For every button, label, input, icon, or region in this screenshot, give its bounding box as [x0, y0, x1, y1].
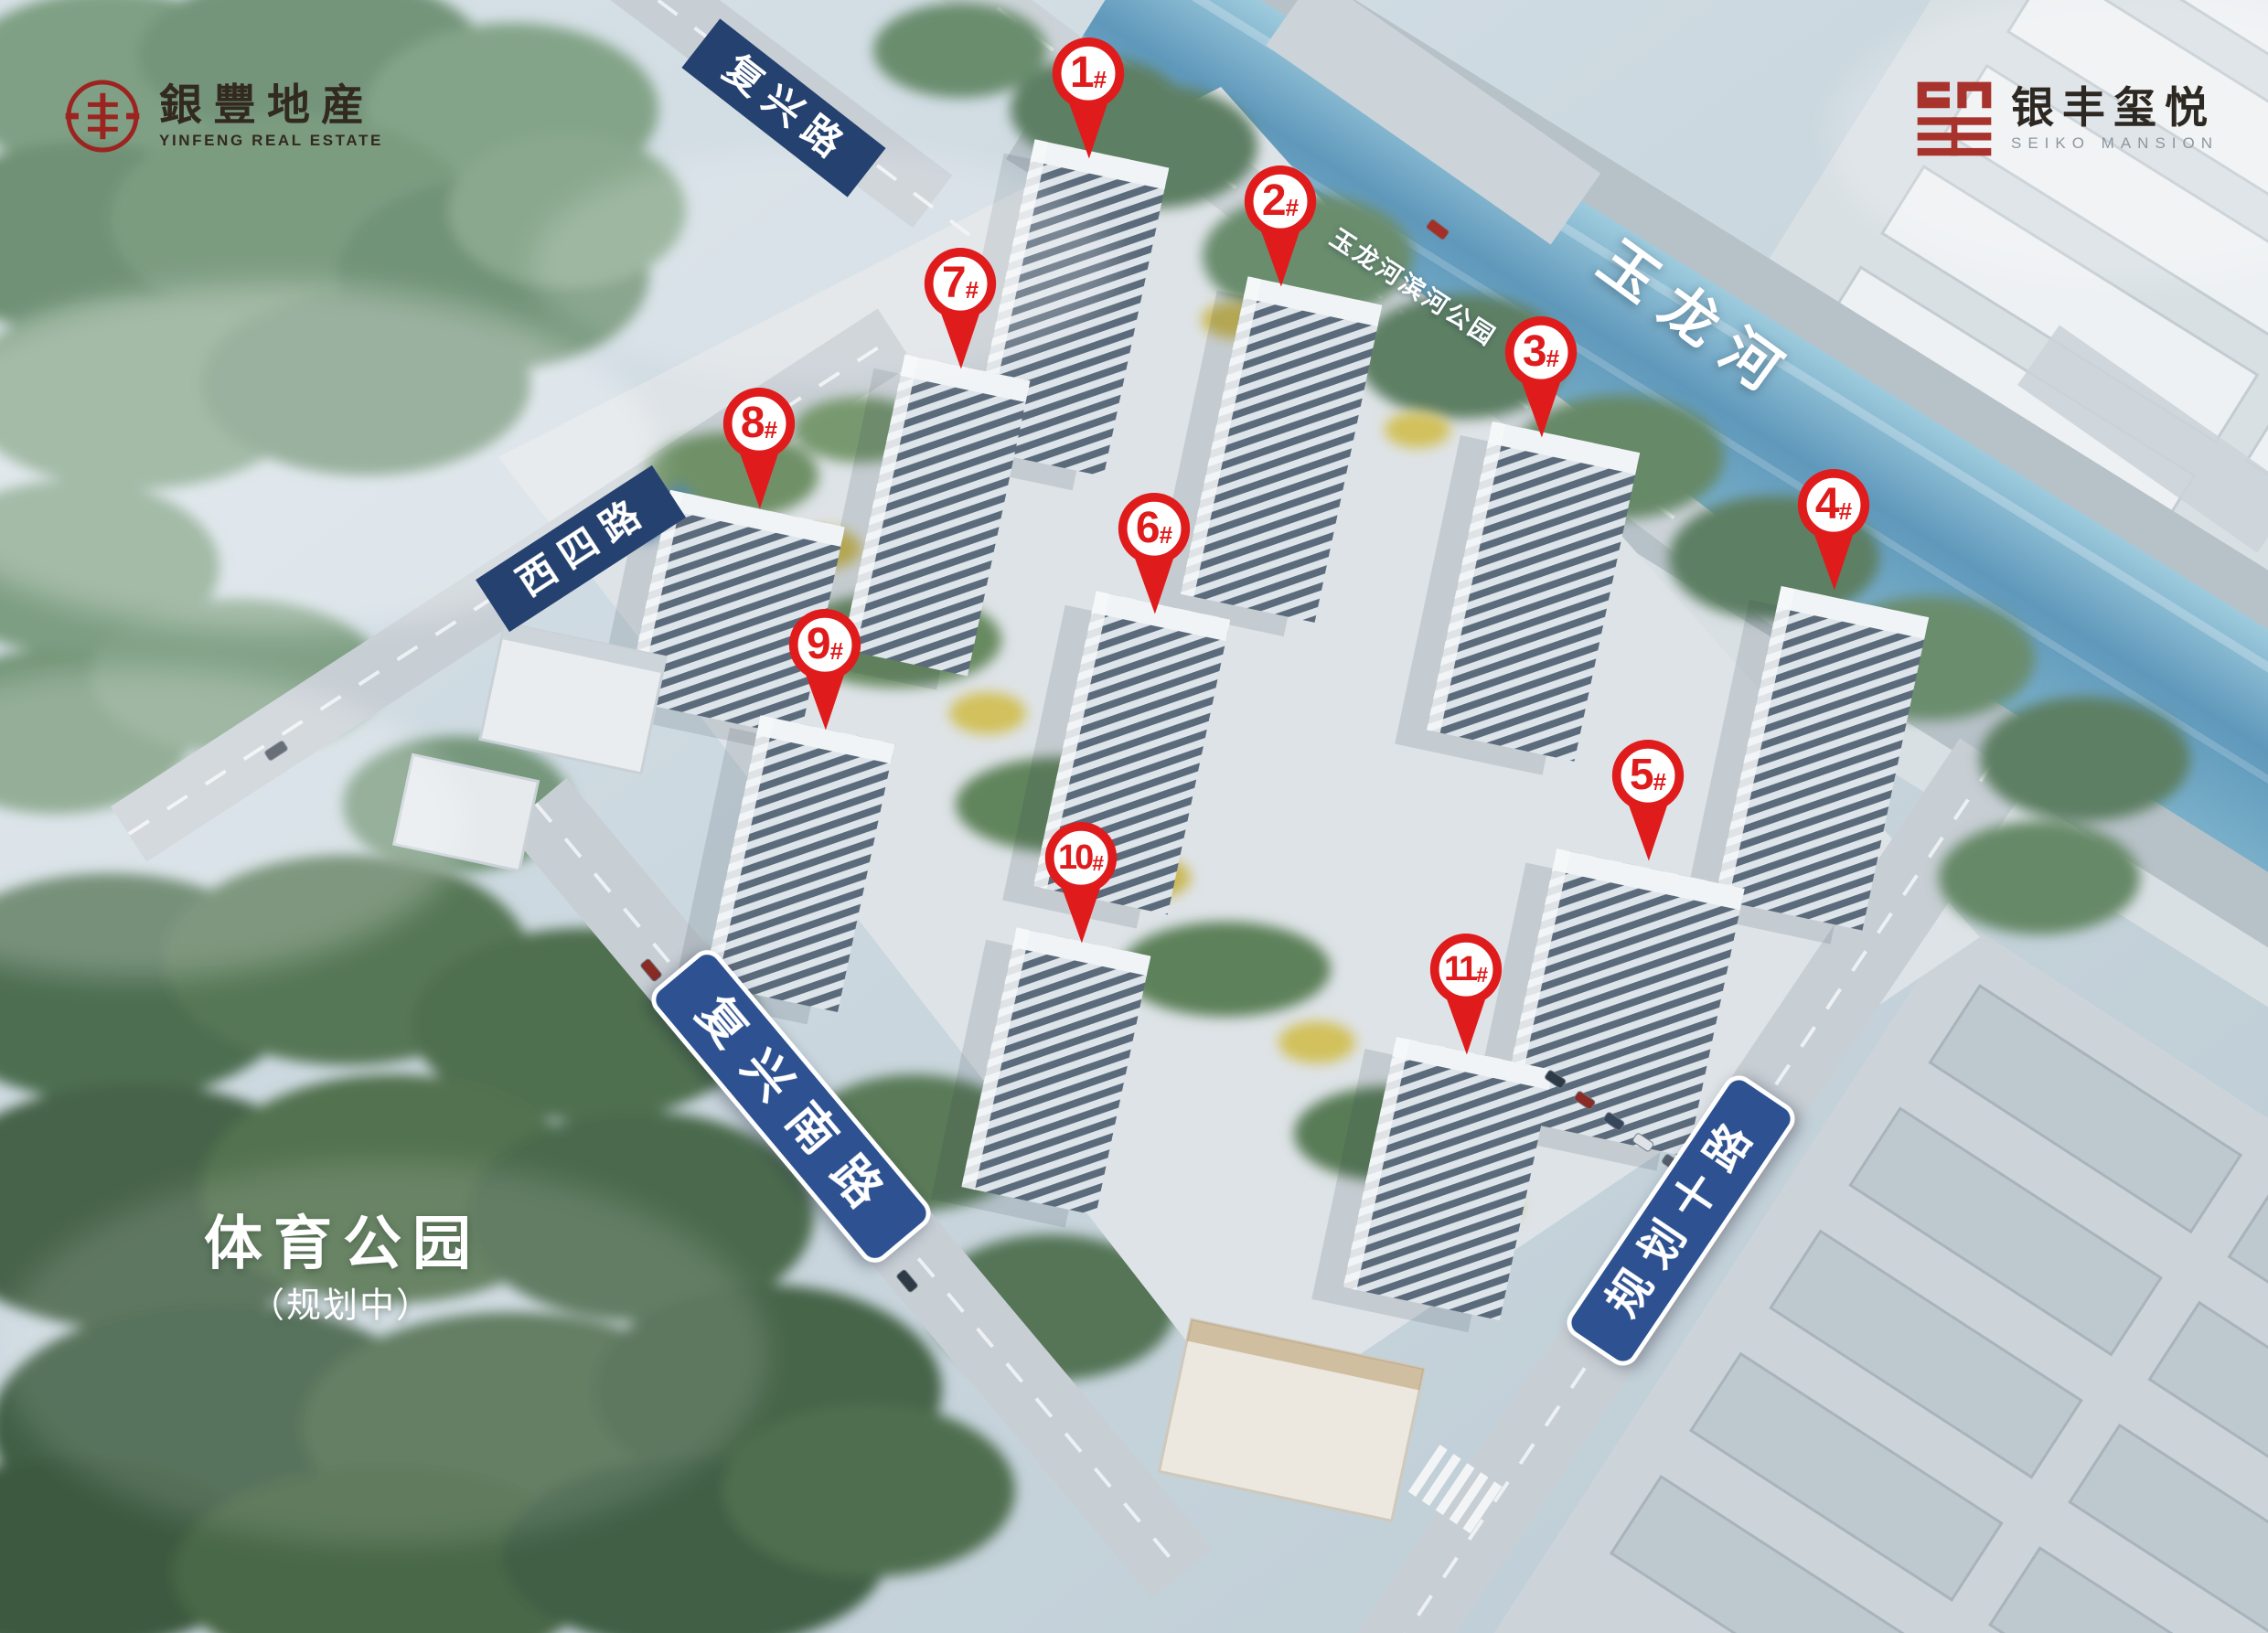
masterplan-poster: { "logos": { "developer": { "cn": "銀豐地産"… — [0, 0, 2268, 1633]
marker-number: 7 — [942, 261, 965, 305]
building-marker-1: 1# — [1048, 33, 1129, 170]
building-marker-2: 2# — [1240, 161, 1321, 298]
building-marker-4: 4# — [1793, 464, 1874, 602]
marker-number: 6 — [1136, 507, 1159, 550]
marker-number: 8 — [741, 401, 764, 445]
marker-hash: # — [1092, 853, 1104, 874]
marker-number: 1 — [1070, 51, 1093, 95]
marker-hash: # — [1546, 347, 1559, 370]
marker-number: 2 — [1262, 179, 1285, 223]
developer-name-cn: 銀豐地産 — [159, 82, 383, 127]
marker-hash: # — [966, 278, 979, 302]
marker-number: 9 — [807, 623, 829, 667]
developer-name-en: YINFENG REAL ESTATE — [159, 132, 383, 150]
marker-hash: # — [1653, 770, 1666, 794]
sports-park-subtitle: （规划中） — [250, 1277, 433, 1328]
seiko-mansion-emblem-icon — [1916, 80, 1993, 157]
sports-park-name: 体育公园 — [204, 1211, 482, 1276]
marker-number: 3 — [1523, 330, 1546, 374]
marker-number: 11 — [1444, 952, 1475, 987]
marker-hash: # — [1286, 196, 1299, 219]
building-marker-7: 7# — [920, 243, 1000, 380]
aerial-site-plan-rendering — [0, 0, 2268, 1633]
marker-hash: # — [830, 639, 843, 663]
project-name-en: SEIKO MANSION — [2011, 134, 2219, 153]
marker-number: 5 — [1630, 753, 1653, 797]
developer-logo: 銀豐地産 YINFENG REAL ESTATE — [64, 78, 383, 155]
building-marker-3: 3# — [1501, 312, 1581, 449]
marker-number: 10 — [1058, 840, 1091, 875]
marker-number: 4 — [1815, 483, 1838, 527]
building-marker-5: 5# — [1608, 735, 1688, 872]
building-marker-10: 10# — [1041, 817, 1121, 955]
yinfeng-seal-icon — [64, 78, 141, 155]
project-name-cn: 银丰玺悦 — [2011, 85, 2219, 130]
marker-hash: # — [1160, 523, 1172, 547]
building-marker-8: 8# — [719, 383, 799, 520]
marker-hash: # — [765, 418, 777, 442]
marker-hash: # — [1839, 499, 1852, 523]
building-marker-11: 11# — [1426, 929, 1506, 1066]
building-marker-6: 6# — [1114, 488, 1194, 625]
marker-hash: # — [1094, 68, 1107, 91]
marker-hash: # — [1476, 965, 1488, 986]
building-marker-9: 9# — [785, 604, 865, 742]
sports-park-status: （规划中） — [250, 1287, 433, 1326]
sports-park-title: 体育公园 — [204, 1197, 482, 1281]
project-logo: 银丰玺悦 SEIKO MANSION — [1916, 80, 2219, 157]
